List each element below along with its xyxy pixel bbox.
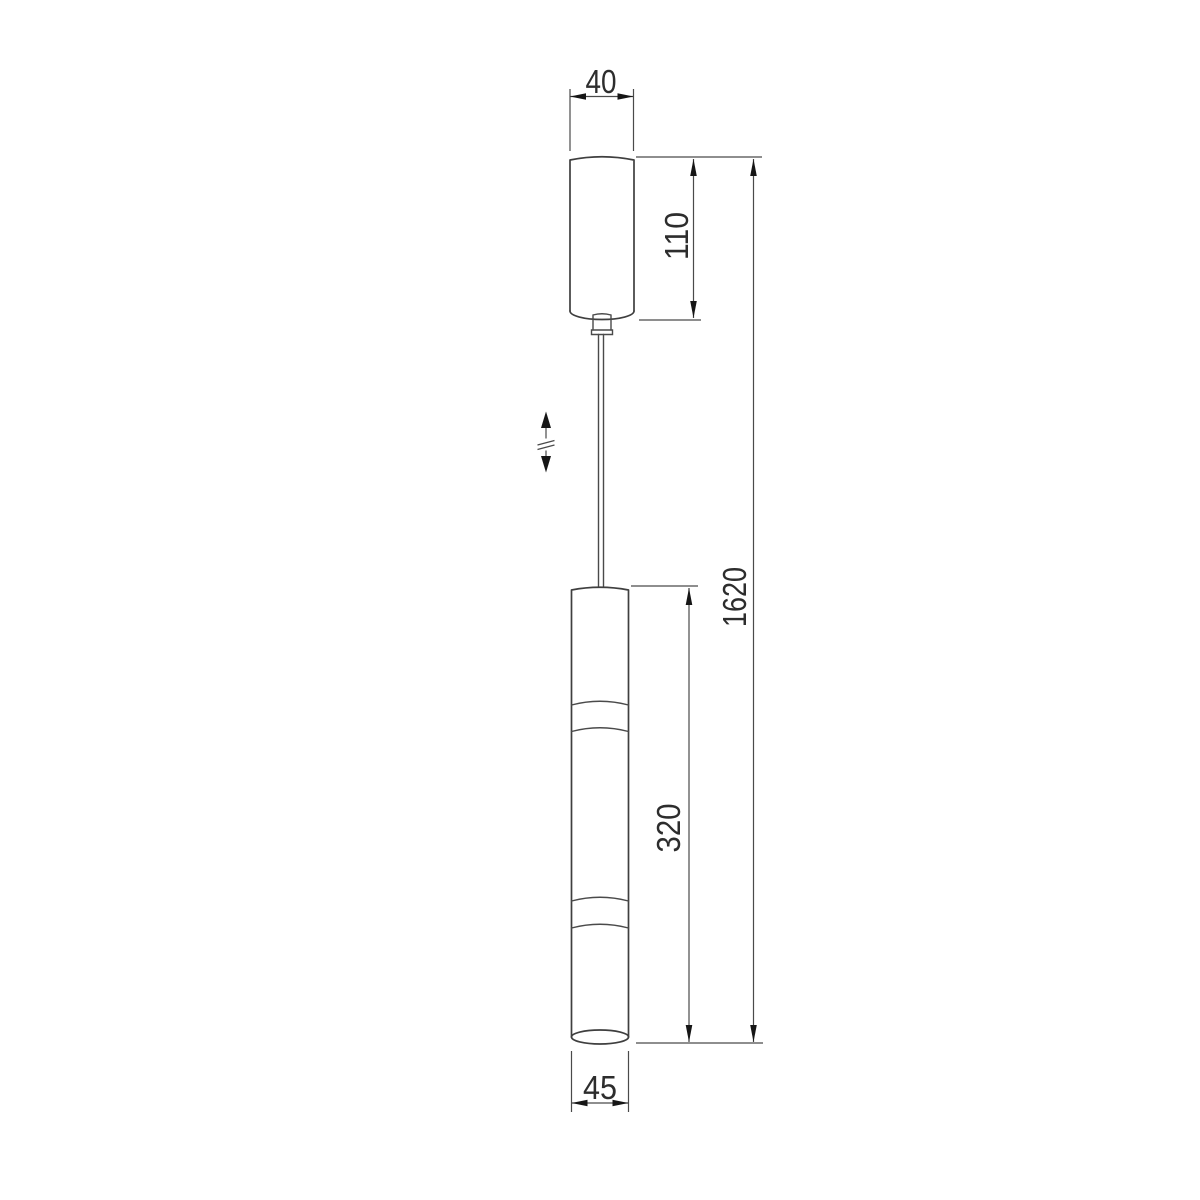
dim1620-top-arrowhead <box>750 159 757 176</box>
drawing-canvas: 40 110 320 <box>0 0 1200 1200</box>
canopy-outline <box>570 157 634 311</box>
adjust-up-arrowhead <box>541 412 551 429</box>
height-adjust-icon <box>538 412 555 473</box>
dim320-bottom-arrowhead <box>686 1025 693 1042</box>
dim40-label: 40 <box>586 63 617 100</box>
adjust-down-arrowhead <box>541 456 551 473</box>
body-seam-ring-lower <box>572 897 629 928</box>
dim110-label: 110 <box>658 212 695 260</box>
dim40-right-arrowhead <box>618 93 634 100</box>
dim-body-width: 45 <box>572 1051 629 1112</box>
canopy <box>570 157 634 320</box>
technical-drawing: 40 110 320 <box>0 0 1200 1200</box>
cable-lines <box>599 335 604 588</box>
dim1620-bottom-arrowhead <box>750 1025 757 1042</box>
dim-body-height: 320 <box>650 588 692 1042</box>
body-seam-ring-upper <box>572 701 629 731</box>
dim-canopy-width: 40 <box>570 63 634 151</box>
suspension-cable <box>599 335 604 588</box>
connector-collar <box>592 330 613 335</box>
connector-stem <box>593 314 611 330</box>
dim1620-label: 1620 <box>716 567 753 627</box>
dim320-label: 320 <box>650 804 687 853</box>
dim45-label: 45 <box>583 1069 617 1106</box>
cable-connector <box>592 314 613 335</box>
dim40-left-arrowhead <box>570 93 586 100</box>
dim320-top-arrowhead <box>686 588 693 605</box>
dim110-bottom-arrowhead <box>690 301 697 318</box>
canopy-bottom-ellipse <box>570 311 634 320</box>
body-bottom-ellipse <box>572 1030 629 1044</box>
dim-overall-height: 1620 <box>716 159 757 1042</box>
body-outline <box>572 587 629 1037</box>
dim110-top-arrowhead <box>690 159 697 176</box>
dim-canopy-height: 110 <box>658 159 697 318</box>
adjust-break-marks <box>538 441 555 450</box>
lamp-body <box>572 587 629 1044</box>
